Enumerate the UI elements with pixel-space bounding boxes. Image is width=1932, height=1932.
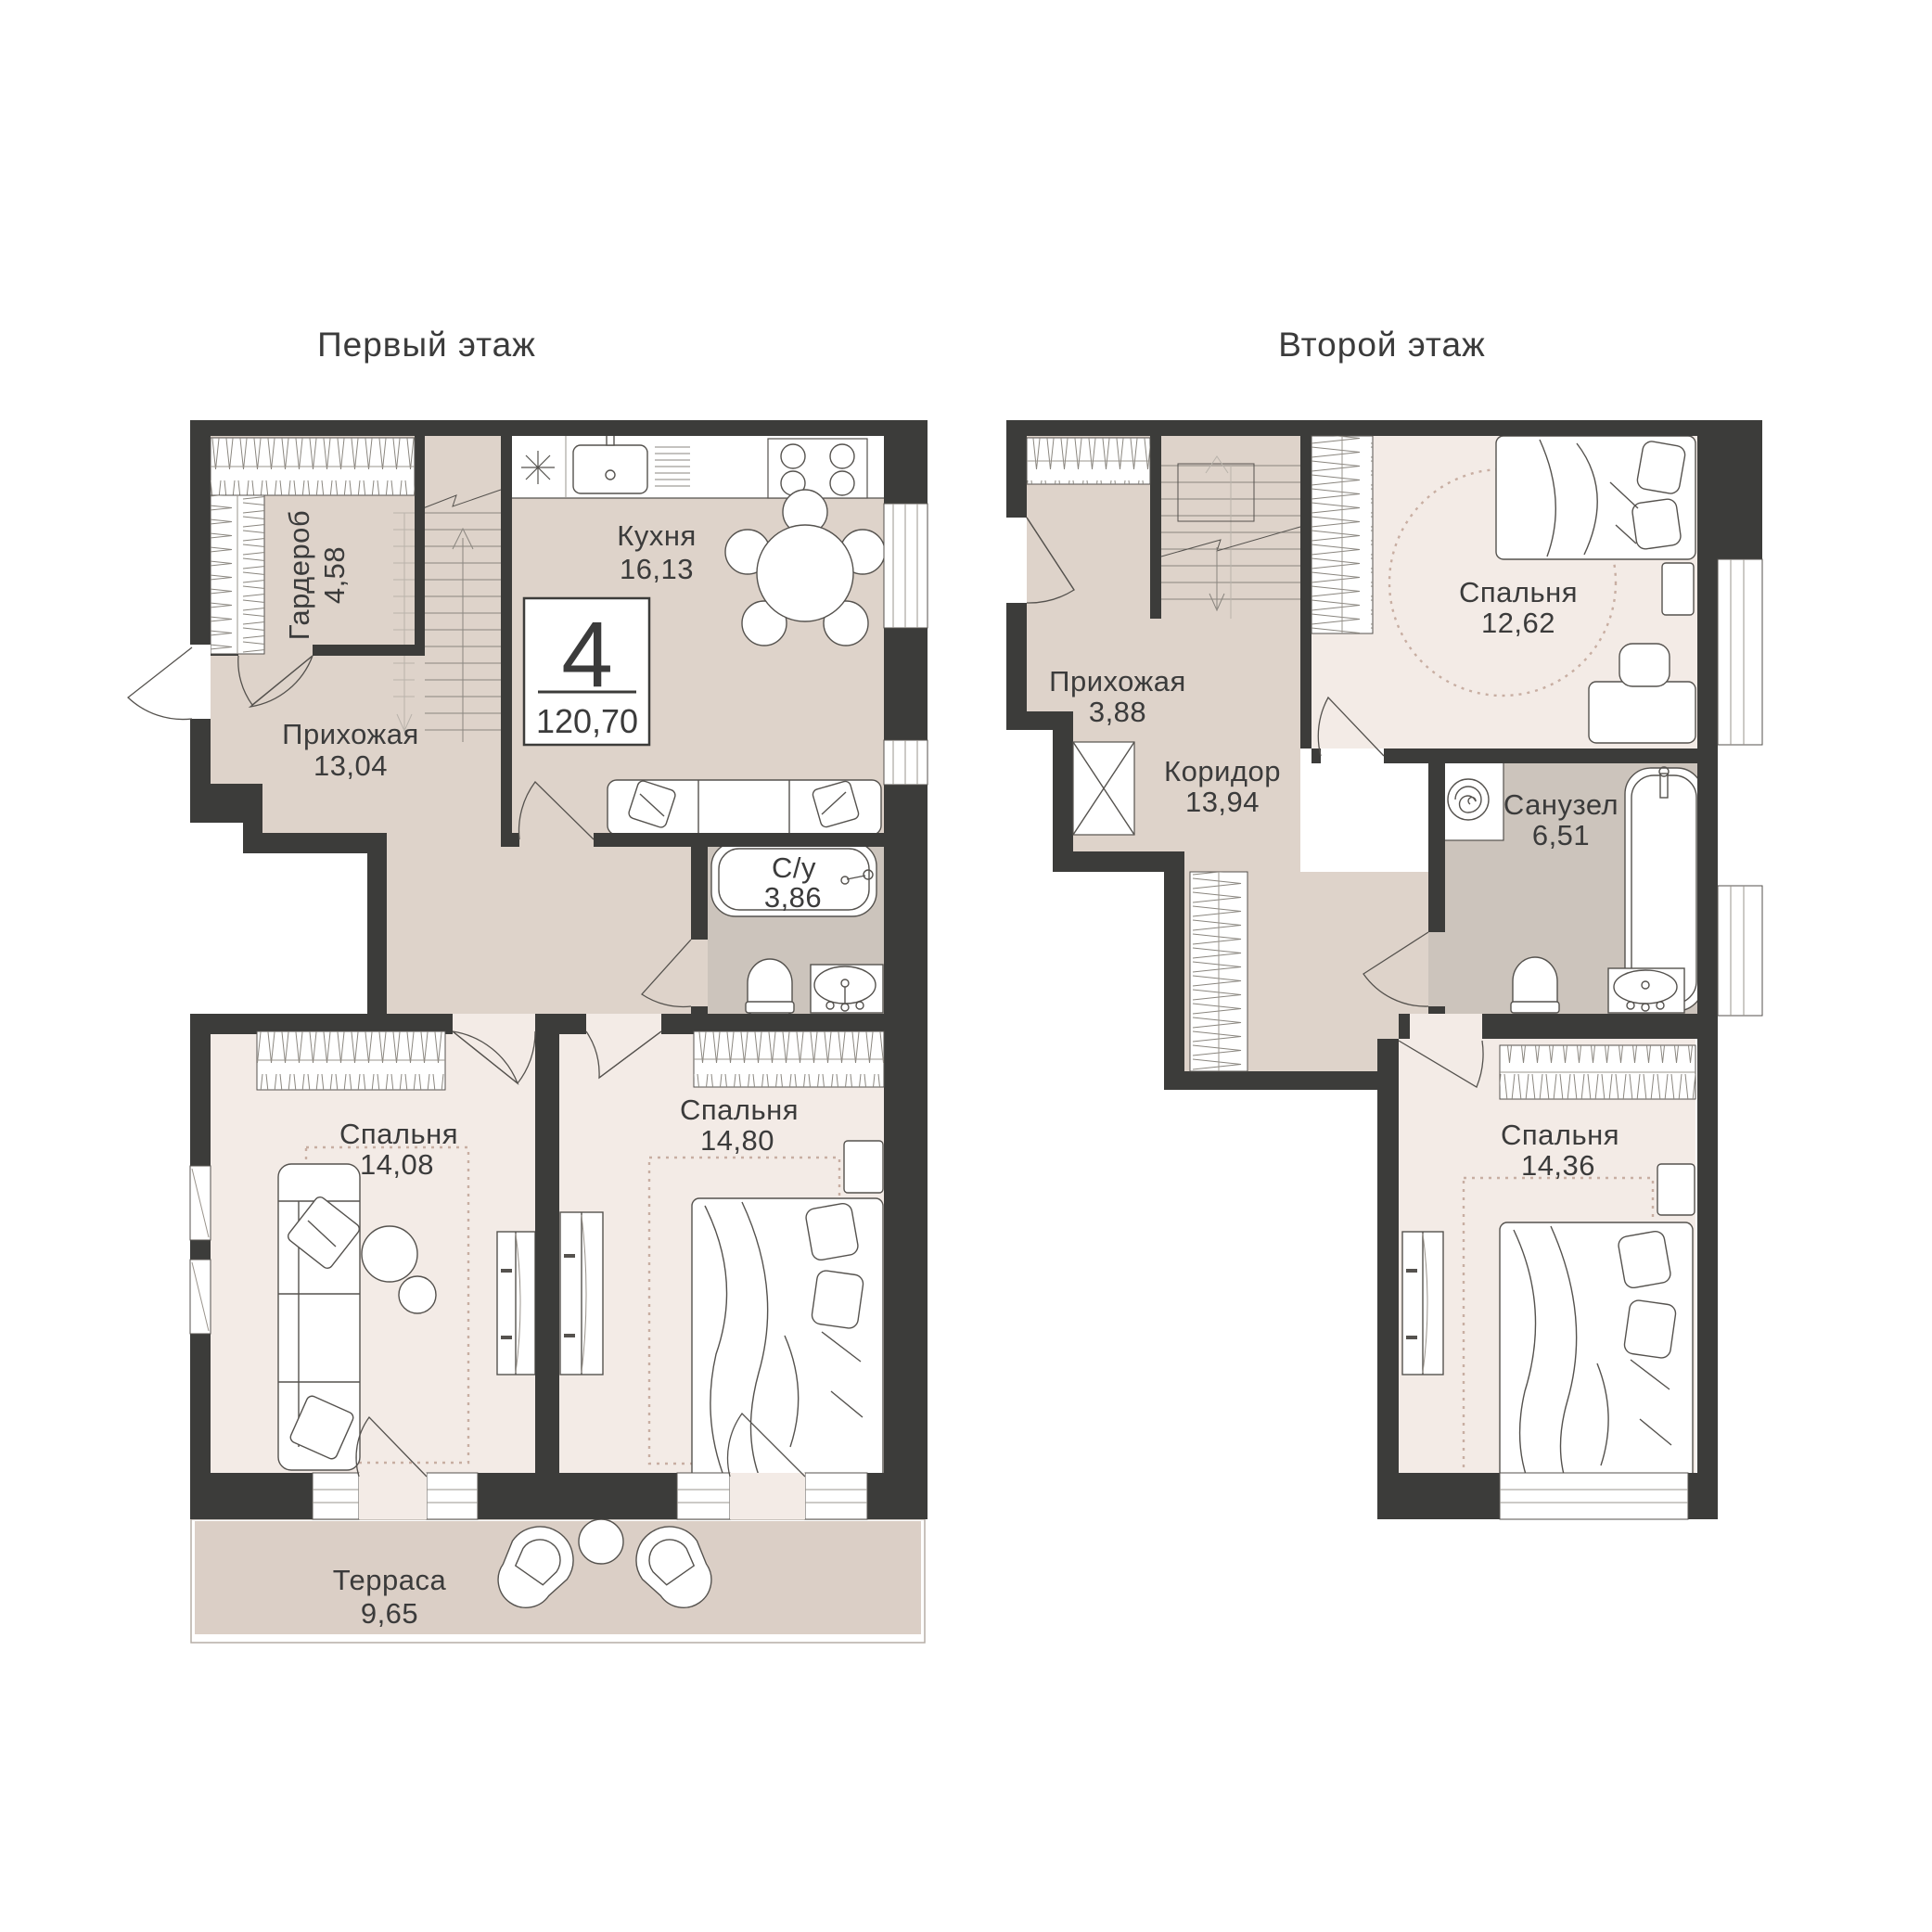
toilet-icon-floor1 <box>746 959 794 1015</box>
stove-icon <box>768 439 867 498</box>
floor2-title: Второй этаж <box>1278 326 1486 364</box>
shaft-icon <box>1073 742 1134 835</box>
room-area-label: 3,88 <box>1089 696 1146 728</box>
room-label: Спальня <box>1459 576 1578 608</box>
fridge-icon <box>521 451 555 484</box>
room-area-label: 6,51 <box>1532 819 1590 851</box>
room-area-label: 14,36 <box>1521 1149 1595 1182</box>
room-area-label: 9,65 <box>361 1597 418 1630</box>
floor-plan-canvas: Первый этаж Второй этаж <box>0 0 1932 1932</box>
room-label: Спальня <box>339 1118 458 1150</box>
nightstand-icon <box>844 1141 883 1193</box>
bed-icon-bedroom4 <box>1500 1222 1693 1493</box>
floor1-plan: 4 120,70 Гардероб 4,58 Кухня 16,13 Прихо… <box>128 420 928 1643</box>
floor2-plan: Прихожая 3,88 Коридор 13,94 Спальня 12,6… <box>1006 420 1762 1519</box>
room-area-label: 13,04 <box>313 749 388 782</box>
room-area-label: 4,58 <box>318 546 351 604</box>
bed-icon-bedroom2 <box>692 1198 883 1482</box>
room-label: Гардероб <box>283 510 315 640</box>
room-label: Спальня <box>680 1094 799 1126</box>
door-opening <box>1399 1014 1482 1039</box>
floor-plan-page: Первый этаж Второй этаж <box>0 0 1932 1932</box>
room-label: Санузел <box>1503 788 1619 821</box>
room-area-label: 3,86 <box>764 881 822 914</box>
room-area-label: 12,62 <box>1481 607 1555 639</box>
room-area-label: 13,94 <box>1185 786 1260 818</box>
sink-icon-floor2-bath <box>1608 968 1684 1013</box>
building-notch <box>1053 872 1164 1071</box>
room-area-label: 16,13 <box>620 553 694 585</box>
building-notch <box>190 853 367 1014</box>
bed-icon-bedroom3 <box>1496 436 1695 559</box>
room-label: Прихожая <box>282 718 419 750</box>
room-label: Кухня <box>617 519 696 552</box>
room-label: Терраса <box>333 1564 447 1596</box>
building-notch <box>190 823 243 853</box>
floor1-title: Первый этаж <box>317 326 536 364</box>
room-label: Спальня <box>1501 1119 1619 1151</box>
toilet-icon-floor2 <box>1511 957 1559 1013</box>
room-label: Коридор <box>1164 755 1281 787</box>
room-area-label: 14,08 <box>360 1148 434 1181</box>
room-label: Прихожая <box>1049 665 1186 697</box>
sofa-icon-kitchen <box>608 780 881 835</box>
wardrobe-icon-bedroom2 <box>560 1212 603 1375</box>
sink-icon-floor1-bath <box>811 965 883 1013</box>
terrace-table-icon <box>579 1519 623 1564</box>
room-area-label: 14,80 <box>700 1124 774 1157</box>
sofa-icon-bedroom1 <box>278 1164 362 1470</box>
nightstand-icon <box>1657 1164 1695 1215</box>
building-notch <box>1006 730 1053 1071</box>
badge-total-area: 120,70 <box>536 702 638 740</box>
wardrobe-icon-bedroom1 <box>497 1232 535 1375</box>
dresser-icon <box>1402 1232 1443 1375</box>
apartment-badge: 4 120,70 <box>524 598 649 745</box>
room-label: С/у <box>772 851 816 884</box>
